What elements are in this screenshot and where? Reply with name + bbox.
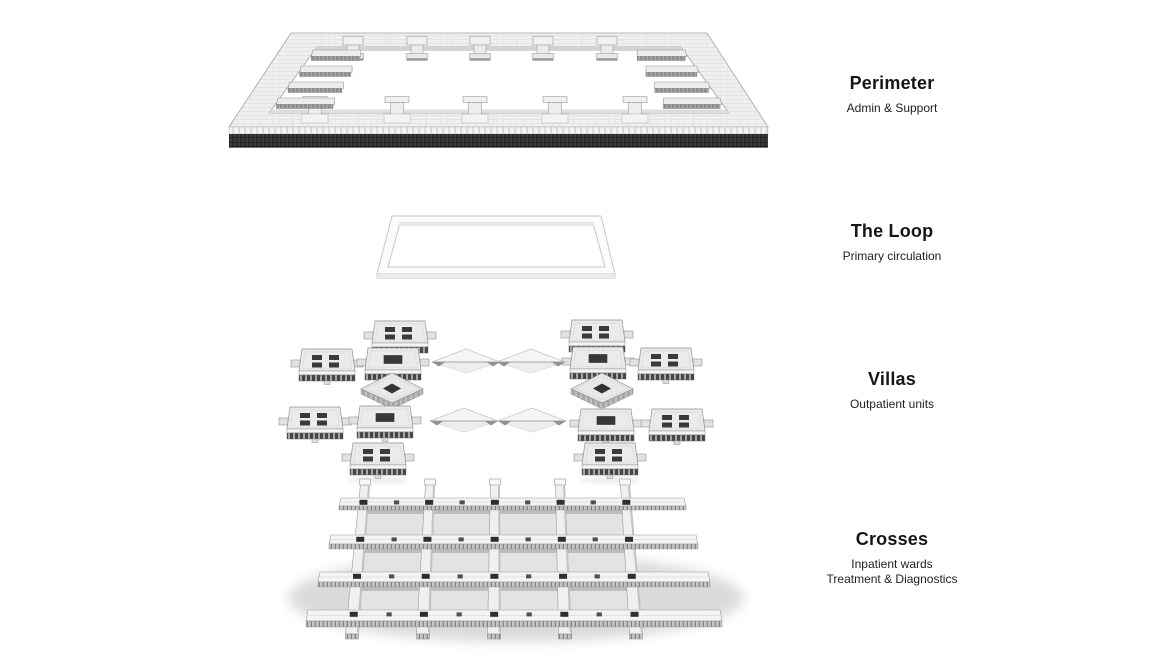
villa-unit (570, 409, 642, 445)
villa-unit (291, 349, 363, 385)
exploded-axonometric-diagram (0, 0, 1160, 653)
villas-illustration (279, 320, 713, 484)
villa-unit (630, 348, 702, 384)
perimeter-ring-illustration (229, 33, 768, 148)
villa-unit (349, 406, 421, 442)
tent-pavilion (430, 408, 498, 432)
villa-unit (574, 443, 646, 479)
perimeter-front-dark-band (229, 134, 768, 147)
tent-pavilion (498, 408, 566, 432)
tent-pavilion (432, 349, 500, 373)
villa-unit (342, 443, 414, 479)
villa-unit (641, 409, 713, 445)
crosses-lattice-illustration (288, 479, 744, 642)
perimeter-front-white-band (229, 127, 768, 134)
tent-pavilion (497, 349, 565, 373)
loop-ring-illustration (377, 216, 615, 279)
villa-unit (279, 407, 351, 443)
